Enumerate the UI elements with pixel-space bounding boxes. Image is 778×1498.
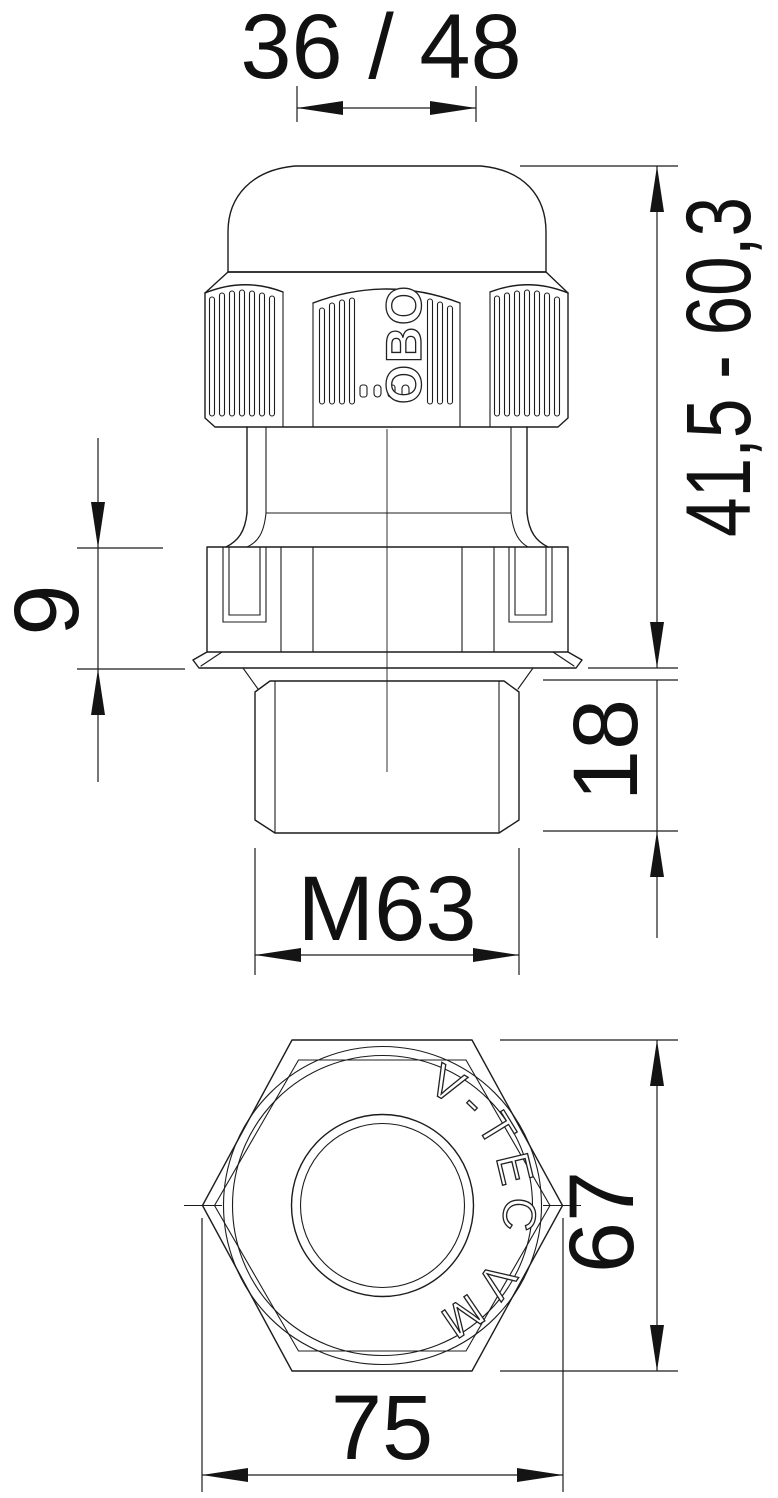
neck-flare — [226, 513, 247, 547]
front-view: V-TEC VM — [184, 1040, 581, 1371]
knurl-rib — [505, 293, 510, 416]
knurl-mark — [360, 385, 367, 397]
arrowhead-up-icon — [650, 831, 664, 877]
knurl-rib — [230, 291, 235, 416]
locknut — [207, 547, 568, 652]
arrowhead-up-icon — [91, 669, 105, 715]
clamping-range-label: 36 / 48 — [240, 0, 521, 98]
dimension-locknut-height: 9 — [0, 438, 185, 782]
arrowhead-down-icon — [650, 622, 664, 668]
thread-transition — [243, 668, 258, 689]
knurl-rib — [515, 291, 520, 416]
side-view: OBO — [193, 166, 582, 833]
knurl-rib — [535, 291, 540, 416]
knurl-rib — [448, 306, 453, 404]
knurl-rib — [525, 290, 530, 416]
height-range-label: 41,5 - 60,3 — [668, 197, 770, 537]
knurl-rib — [555, 297, 560, 416]
arrowhead-up-icon — [650, 1040, 664, 1086]
knurl-rib — [250, 291, 255, 416]
locknut-body — [207, 547, 568, 652]
thread-length-label: 18 — [555, 699, 657, 801]
knurl-rib — [270, 296, 275, 416]
arrowhead-down-icon — [91, 502, 105, 548]
flange — [193, 652, 582, 668]
knurl-rib — [350, 298, 355, 404]
arrowhead-left-icon — [202, 1468, 248, 1482]
neck-flare — [511, 513, 528, 547]
bore-circle-inner — [301, 1124, 465, 1288]
across-flats-label: 67 — [551, 1171, 653, 1273]
arrowhead-right-icon — [517, 1468, 563, 1482]
neck-flare — [247, 513, 266, 547]
cap-right-transition — [546, 272, 568, 293]
locknut-slot-inner — [515, 547, 546, 615]
neck-flare — [527, 513, 548, 547]
locknut-slot-inner — [229, 547, 260, 615]
across-corners-label: 75 — [331, 1377, 433, 1479]
knurl-rib — [320, 308, 325, 404]
arrowhead-down-icon — [650, 1325, 664, 1371]
knurl-rib — [545, 293, 550, 416]
knurl-rib — [240, 290, 245, 416]
knurl-rib — [340, 300, 345, 404]
bore-circle-outer — [292, 1115, 474, 1297]
flange-disc — [193, 652, 582, 668]
dimension-thread-size: M63 — [255, 848, 519, 975]
product-marking-text: V-TEC VM — [421, 1053, 547, 1354]
dimension-thread-length: 18 — [543, 680, 678, 938]
knurl-rib — [260, 293, 265, 416]
thread — [243, 668, 533, 833]
knurl-rib — [220, 293, 225, 416]
dome-cap — [228, 166, 546, 272]
knurl-rib — [495, 296, 500, 416]
arrowhead-right-icon — [473, 948, 519, 962]
cable-gland-drawing: OBO — [0, 0, 778, 1498]
thread-size-label: M63 — [298, 858, 477, 960]
arrowhead-left-icon — [297, 101, 343, 115]
locknut-height-label: 9 — [0, 584, 98, 635]
technical-drawing-sheet: OBO — [0, 0, 778, 1498]
knurl-rib — [210, 297, 215, 416]
arrowhead-left-icon — [255, 948, 301, 962]
arrowhead-up-icon — [650, 166, 664, 212]
knurl-rib — [330, 303, 335, 404]
arrowhead-right-icon — [430, 101, 476, 115]
knurl-rib — [438, 302, 443, 404]
dimension-clamping-range: 36 / 48 — [240, 0, 521, 122]
thread-transition — [518, 668, 533, 689]
cap-left-transition — [205, 272, 228, 293]
dimension-height-range: 41,5 - 60,3 — [520, 166, 770, 668]
obo-logo: OBO — [376, 284, 432, 404]
product-marking: V-TEC VM — [421, 1053, 547, 1354]
